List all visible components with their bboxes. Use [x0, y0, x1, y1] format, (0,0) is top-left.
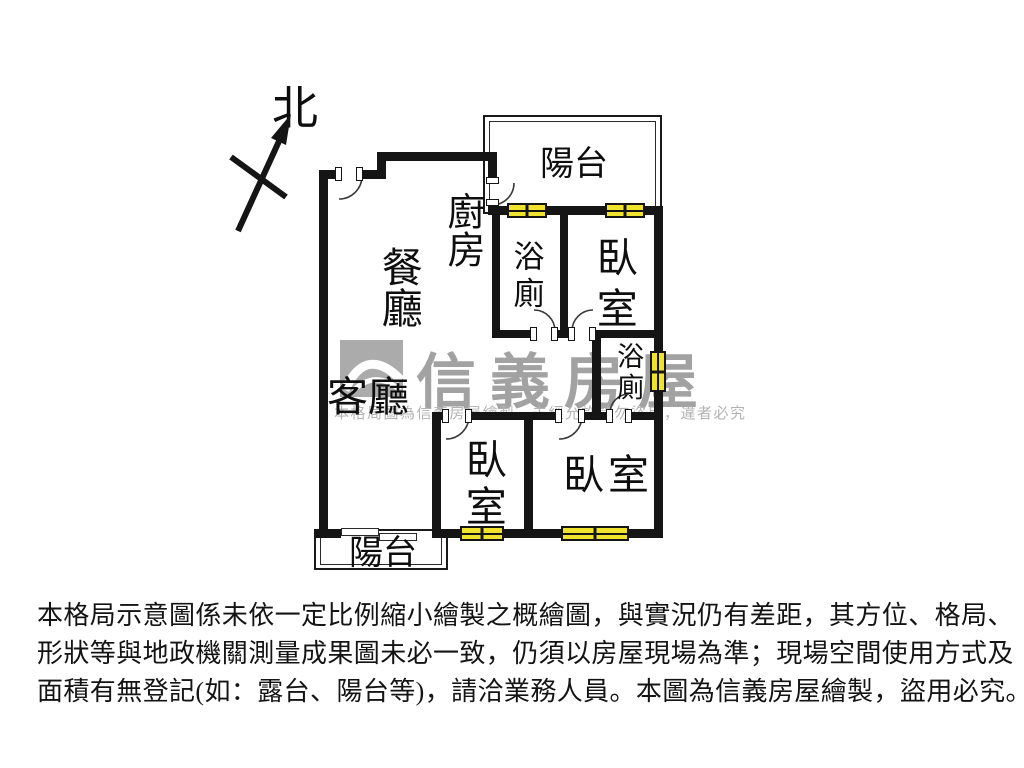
- disclaimer-line-3: 面積有無登記(如：露台、陽台等)，請洽業務人員。本圖為信義房屋繪製，盜用必究。: [37, 673, 1024, 711]
- room-label-bedroom-bottom-right: 臥室: [563, 453, 653, 497]
- wall-segment: [314, 529, 341, 538]
- room-label-dining: 餐廳: [376, 246, 420, 328]
- window: [561, 526, 629, 541]
- wall-segment: [560, 215, 568, 330]
- room-label-balcony-top: 陽台: [540, 147, 608, 184]
- window: [605, 203, 645, 218]
- room-label-living: 客廳: [327, 375, 409, 419]
- compass-north-label: 北: [272, 72, 318, 138]
- room-label-bath-mid: 浴廁: [613, 342, 642, 404]
- disclaimer-line-1: 本格局示意圖係未依一定比例縮小繪製之概繪圖，與實況仍有差距，其方位、格局、: [37, 597, 1024, 635]
- disclaimer-line-2: 形狀等與地政機關測量成果圖未必一致，仍須以房屋現場為準；現場空間使用方式及: [37, 635, 1024, 673]
- window: [650, 351, 666, 392]
- door-post: [578, 409, 585, 423]
- floorplan-canvas: 信義房屋 本格局圖為信義房屋繪製，未經允許請勿盜用，違者必究: [0, 0, 1024, 768]
- door-post: [442, 409, 449, 423]
- wall-segment: [377, 152, 497, 161]
- door-post: [568, 327, 575, 341]
- wall-segment: [472, 412, 559, 420]
- window: [507, 203, 547, 218]
- room-label-bedroom-top-right: 臥室: [591, 236, 635, 338]
- door-post: [551, 327, 558, 341]
- door-post: [486, 199, 499, 206]
- door-post: [530, 327, 537, 341]
- door-post: [465, 409, 472, 423]
- wall-segment: [631, 412, 663, 420]
- door-post: [486, 177, 499, 184]
- wall-segment: [524, 412, 533, 538]
- wall-segment: [592, 336, 601, 420]
- door-post: [356, 167, 363, 181]
- room-label-bath-top: 浴廁: [509, 240, 542, 314]
- door-post: [555, 409, 562, 423]
- room-label-bedroom-bottom-left: 臥室: [460, 438, 504, 532]
- door-post: [625, 409, 632, 423]
- room-label-kitchen: 廚房: [441, 192, 482, 268]
- door-post: [335, 167, 342, 181]
- wall-segment: [492, 330, 534, 338]
- wall-segment: [432, 412, 441, 538]
- door-post: [606, 409, 613, 423]
- disclaimer-text: 本格局示意圖係未依一定比例縮小繪製之概繪圖，與實況仍有差距，其方位、格局、 形狀…: [37, 597, 1024, 711]
- room-label-balcony-bottom: 陽台: [349, 536, 417, 573]
- wall-segment: [492, 215, 500, 338]
- wall-segment: [319, 170, 328, 538]
